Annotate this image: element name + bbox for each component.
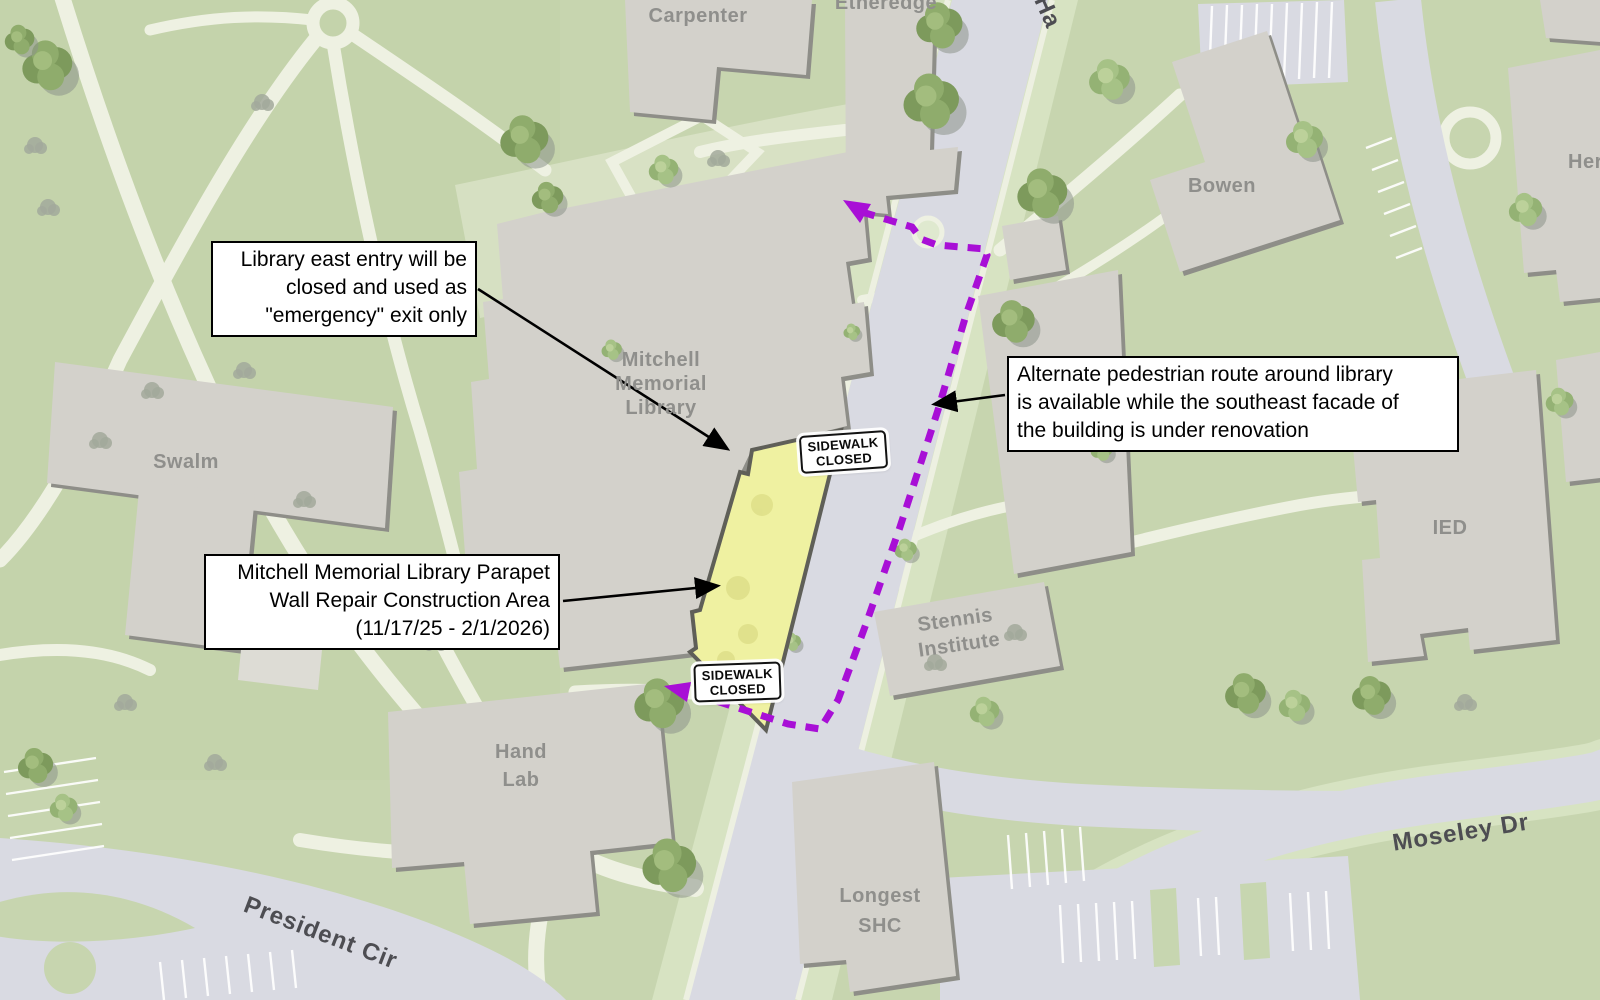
campus-map: Carpenter Etheredge Mitchell Memorial Li… — [0, 0, 1600, 1000]
callout-construction-line1: Mitchell Memorial Library Parapet — [214, 559, 550, 587]
callout-alternate-route: Alternate pedestrian route around librar… — [1007, 356, 1459, 452]
callout-east-entry-line1: Library east entry will be — [221, 246, 467, 274]
campus-map-svg: Carpenter Etheredge Mitchell Memorial Li… — [0, 0, 1600, 1000]
callout-alt-route-line2: is available while the southeast facade … — [1017, 389, 1449, 417]
building-small-north — [1002, 216, 1066, 280]
label-herzer-partial: Her — [1568, 151, 1600, 173]
callout-east-entry: Library east entry will be closed and us… — [211, 241, 477, 337]
sidewalk-closed-sign-south: SIDEWALK CLOSED — [693, 661, 781, 702]
callout-construction-area: Mitchell Memorial Library Parapet Wall R… — [204, 554, 560, 650]
callout-alt-route-line3: the building is under renovation — [1017, 417, 1449, 445]
label-longest-1: Longest — [839, 885, 920, 907]
building-top-right — [1540, 0, 1600, 42]
label-swalm: Swalm — [153, 451, 219, 473]
label-hand-1: Hand — [495, 741, 547, 763]
label-library-1: Mitchell — [622, 349, 700, 371]
label-hand-2: Lab — [502, 769, 539, 791]
label-ied: IED — [1433, 517, 1468, 539]
sign-south-line2: CLOSED — [702, 681, 773, 698]
callout-alt-route-line1: Alternate pedestrian route around librar… — [1017, 361, 1449, 389]
callout-east-entry-line2: closed and used as — [221, 274, 467, 302]
callout-construction-line2: Wall Repair Construction Area — [214, 587, 550, 615]
label-etheredge: Etheredge — [835, 0, 937, 14]
label-carpenter: Carpenter — [649, 5, 748, 27]
callout-construction-line3: (11/17/25 - 2/1/2026) — [214, 615, 550, 643]
label-library-2: Memorial — [615, 373, 707, 395]
label-longest-2: SHC — [858, 915, 902, 937]
label-bowen: Bowen — [1188, 175, 1256, 197]
label-library-3: Library — [625, 397, 697, 419]
building-longest-shc — [792, 762, 956, 992]
sidewalk-closed-sign-north: SIDEWALK CLOSED — [799, 430, 888, 474]
callout-east-entry-line3: "emergency" exit only — [221, 302, 467, 330]
